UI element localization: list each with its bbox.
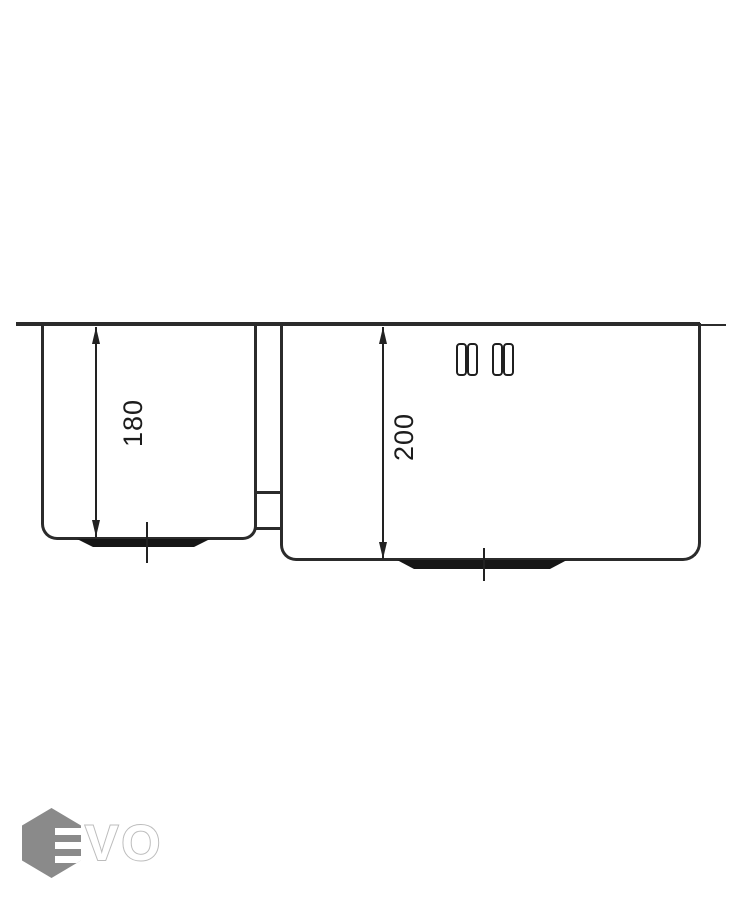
logo-e-bar bbox=[55, 842, 85, 849]
dimension-line-left-depth bbox=[95, 327, 97, 537]
logo-e-bar bbox=[55, 828, 85, 835]
overflow-slot bbox=[492, 343, 503, 376]
overflow-slot bbox=[467, 343, 478, 376]
logo-wordmark: VO bbox=[85, 808, 163, 878]
left-bowl-drain-recess bbox=[77, 539, 210, 547]
evo-logo: VO bbox=[22, 807, 163, 879]
counter-rim-line-extension bbox=[700, 324, 726, 326]
divider-rung-upper bbox=[256, 491, 282, 494]
arrowhead-down-icon bbox=[379, 542, 387, 559]
dimension-label-left-depth: 180 bbox=[119, 393, 147, 453]
arrowhead-up-icon bbox=[379, 327, 387, 344]
left-drain-centerline bbox=[146, 522, 148, 563]
logo-hexagon-icon bbox=[22, 808, 81, 878]
overflow-slot bbox=[503, 343, 514, 376]
right-drain-centerline bbox=[483, 548, 485, 581]
overflow-slot bbox=[456, 343, 467, 376]
sink-technical-drawing: 180 200 VO bbox=[0, 0, 739, 900]
dimension-line-right-depth bbox=[382, 327, 384, 559]
right-bowl-outline bbox=[280, 323, 701, 561]
dimension-label-right-depth: 200 bbox=[390, 407, 418, 467]
divider-rung-lower bbox=[256, 527, 282, 530]
left-bowl-outline bbox=[41, 323, 257, 540]
logo-e-bar bbox=[55, 856, 85, 863]
arrowhead-up-icon bbox=[92, 327, 100, 344]
arrowhead-down-icon bbox=[92, 520, 100, 537]
right-bowl-drain-recess bbox=[397, 560, 567, 569]
